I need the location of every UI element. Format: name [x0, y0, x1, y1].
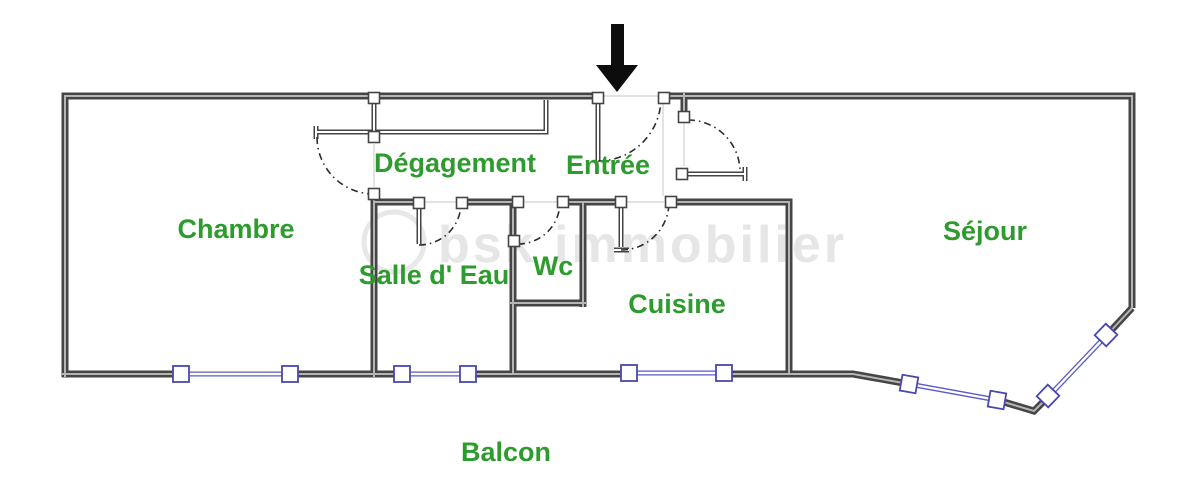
- window-mullion: [394, 366, 410, 382]
- door-jamb: [659, 93, 670, 104]
- room-labels: Chambre Dégagement Entrée Salle d' Eau W…: [177, 148, 1027, 467]
- door-jamb: [369, 132, 380, 143]
- room-label-salle-deau: Salle d' Eau: [359, 260, 509, 290]
- window-line-core: [181, 336, 1106, 400]
- room-label-wc: Wc: [533, 251, 574, 281]
- door-jamb: [558, 197, 569, 208]
- room-label-cuisine: Cuisine: [628, 289, 726, 319]
- door-jamb: [509, 236, 520, 247]
- room-label-entree: Entrée: [566, 150, 650, 180]
- room-label-balcon: Balcon: [461, 437, 551, 467]
- window-mullion: [716, 365, 732, 381]
- door-jamb: [593, 93, 604, 104]
- arrow-shaft: [611, 24, 624, 68]
- room-label-chambre: Chambre: [177, 214, 294, 244]
- door-jamb: [457, 198, 468, 209]
- window-mullion: [173, 366, 189, 382]
- door-jamb: [513, 197, 524, 208]
- arrow-head: [596, 65, 638, 92]
- window-mullion: [621, 365, 637, 381]
- window-mullion: [282, 366, 298, 382]
- door-jamb: [666, 197, 677, 208]
- door-jamb: [414, 198, 425, 209]
- window-line: [181, 336, 1106, 400]
- room-label-degagement: Dégagement: [374, 148, 536, 178]
- window-mullion: [988, 391, 1007, 410]
- windows: [181, 336, 1106, 400]
- door-jamb: [369, 93, 380, 104]
- door-jamb: [679, 112, 690, 123]
- window-mullion: [460, 366, 476, 382]
- room-label-sejour: Séjour: [943, 216, 1028, 246]
- entrance-down-arrow-icon: [596, 24, 638, 92]
- door-jamb: [677, 169, 688, 180]
- window-mullion: [900, 375, 919, 394]
- door-jamb: [616, 197, 627, 208]
- floor-plan-canvas: bsk immobilier: [0, 0, 1188, 482]
- floor-plan: bsk immobilier: [0, 0, 1188, 482]
- door-jamb: [369, 189, 380, 200]
